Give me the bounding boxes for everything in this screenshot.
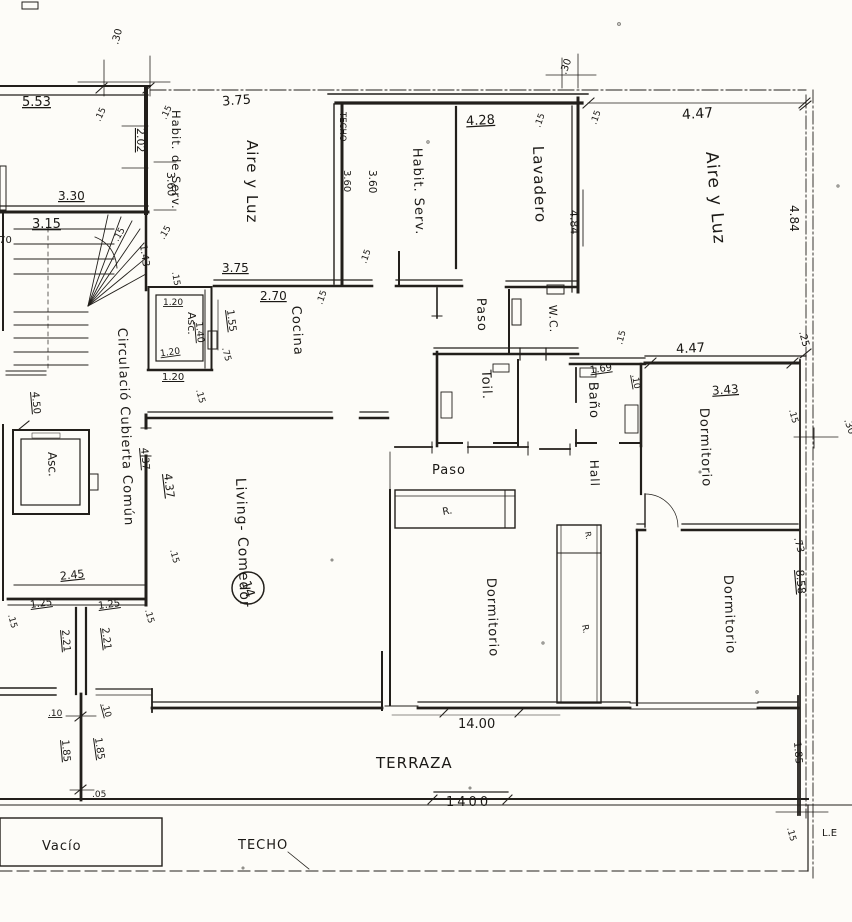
dim-15-l: .15	[786, 408, 799, 424]
room-label-living-comedor: Living- Comedor	[232, 478, 253, 608]
room-label-wc: W.C.	[546, 305, 560, 334]
dim-15-p: .15	[784, 826, 797, 842]
room-label-habit-serv: Habit. Serv.	[409, 148, 427, 236]
dim-15-j: .15	[193, 388, 206, 404]
room-label-dormitorio-center: Dormitorio	[483, 578, 501, 658]
dim-15-a: .15	[94, 106, 109, 123]
dim-120-a: 1.20	[163, 298, 183, 308]
dim-484-right: 4.84	[787, 205, 801, 232]
dim-15-n: .15	[5, 613, 18, 629]
dim-15-h: .15	[315, 289, 329, 306]
dim-10-c: .10	[99, 702, 112, 719]
dim-428: 4.28	[466, 113, 496, 129]
room-label-toil: Toil.	[478, 369, 494, 401]
dim-360-room: 3.60	[366, 170, 378, 193]
dim-120-b: 1.20	[160, 347, 182, 360]
dim-185-a: 1.85	[59, 739, 72, 762]
dim-221-b: 2.21	[99, 627, 113, 650]
room-label-techo: TECHO	[237, 838, 288, 853]
dim-15-d: .15	[158, 224, 174, 241]
room-label-paso-upper: Paso	[473, 298, 489, 332]
room-label-dormitorio-ne: Dormitorio	[696, 408, 714, 488]
dim-15-o: .15	[142, 608, 155, 624]
room-label-dormitorio-se: Dormitorio	[720, 575, 738, 655]
dim-484-left: 4.84	[567, 210, 581, 235]
dim-858: 8.58	[793, 569, 808, 595]
dim-155: 1.55	[224, 309, 238, 332]
dim-1400-top: 14.00	[458, 717, 495, 732]
dim-10-a: .10	[629, 374, 641, 390]
closet-mark-low: R.	[579, 624, 590, 634]
dim-05: .05	[92, 790, 106, 800]
dim-75: .75	[219, 346, 232, 362]
dim-221-a: 2.21	[59, 629, 72, 652]
dim-73: .73	[791, 536, 806, 554]
dim-360-patio: 3.60	[164, 172, 178, 197]
dim-202: 2.02	[134, 128, 147, 153]
dim-185-b: 1.85	[92, 737, 106, 761]
dim-315: 3.15	[32, 217, 61, 232]
dim-330: 3.30	[58, 189, 85, 203]
dim-15-k: .15	[615, 329, 628, 345]
room-label-aire-y-luz-left: Aire y Luz	[243, 140, 261, 223]
dim-447-mid: 4.47	[676, 341, 706, 357]
dim-169: 1.69	[589, 362, 613, 376]
dim-15-e: .15	[169, 271, 181, 287]
dim-447-top: 4.47	[681, 105, 713, 123]
dim-553: 5.53	[22, 95, 51, 110]
labels: Habit. de Serv. Aire y Luz Habit. Serv. …	[0, 28, 852, 854]
dim-15-m: .15	[167, 548, 180, 564]
dim-25: .25	[796, 330, 811, 348]
annotation-le: L.E	[822, 828, 837, 839]
dim-245: 2.45	[59, 567, 85, 582]
room-label-cocina: Cocina	[288, 305, 306, 356]
room-label-terraza: TERRAZA	[375, 754, 453, 772]
room-label-bano: Baño	[585, 382, 601, 420]
room-label-asc-lower: Asc.	[45, 452, 60, 477]
dim-185-c: 1.85	[791, 741, 804, 764]
dim-30-topright: .30	[558, 57, 574, 76]
room-label-aire-y-luz-right: Aire y Luz	[701, 151, 729, 246]
dim-343: 3.43	[712, 382, 740, 398]
floor-plan-drawing: 14 Habit. de Serv. Aire y Luz Habit. Ser…	[0, 0, 852, 922]
dim-437-b: 4.37	[161, 473, 177, 499]
dim-437-a: 4.37	[138, 447, 151, 470]
dim-375-mid: 3.75	[222, 261, 249, 275]
dim-15-i: .15	[359, 248, 373, 265]
dim-70: .70	[0, 235, 12, 246]
floor-plan-sheet: 14 Habit. de Serv. Aire y Luz Habit. Ser…	[0, 0, 852, 922]
dim-450: 4.50	[29, 391, 42, 414]
dim-270: 2.70	[260, 289, 287, 303]
dim-15-f: .15	[533, 112, 547, 129]
room-label-hall: Hall	[587, 460, 602, 488]
dim-140: 1.40	[193, 321, 206, 343]
closet-mark-mid: R.	[583, 531, 593, 540]
room-label-lavadero: Lavadero	[529, 146, 550, 224]
dim-375-top: 3.75	[222, 93, 252, 110]
dim-10-b: .10	[48, 709, 63, 719]
closet-mark-top: R.	[442, 505, 454, 518]
dim-30-topleft: .30	[110, 28, 125, 46]
dim-1400-bottom: 1400	[446, 795, 491, 810]
dim-125-a: 1.25	[29, 597, 53, 611]
room-label-techo-wall: TECHO	[337, 111, 347, 142]
room-label-vacio: Vacío	[42, 839, 82, 854]
dim-15-g: .15	[589, 109, 603, 126]
dim-360-wall: 3.60	[341, 170, 352, 192]
dim-120-c: 1.20	[162, 372, 184, 383]
dim-30-right: .30	[841, 417, 852, 436]
room-label-paso-mid: Paso	[432, 463, 466, 478]
dim-125-b: 1.25	[97, 598, 121, 612]
room-label-circulacion: Circulació Cubierta Común	[114, 328, 136, 527]
